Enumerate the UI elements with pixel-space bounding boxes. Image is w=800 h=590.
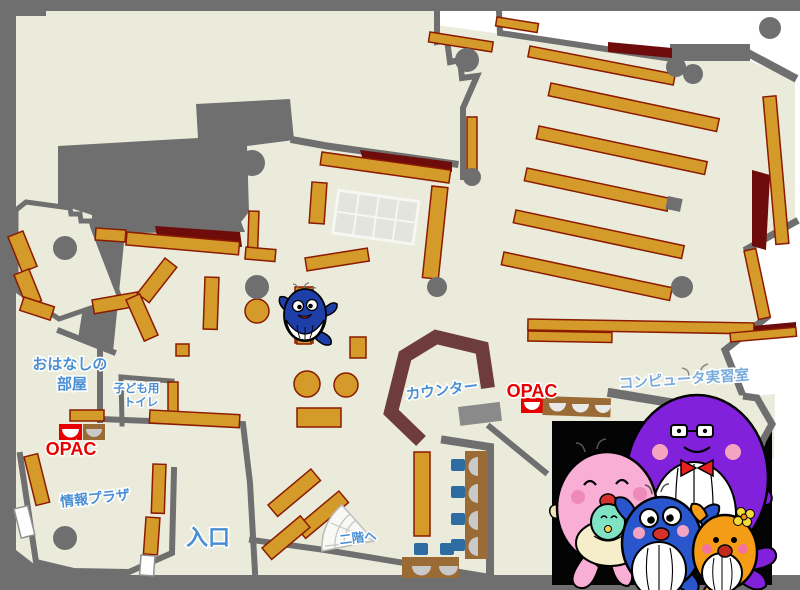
floor-map-svg: おはなしの 部屋 子ども用 トイレ OPAC 情報プラザ 入口 カウンター OP…	[0, 0, 800, 590]
label-opac-left: OPAC	[46, 439, 97, 459]
label-entrance: 入口	[186, 525, 230, 550]
opac-station-left	[59, 424, 105, 440]
wall-band-top-right	[670, 44, 750, 61]
library-floor-map: おはなしの 部屋 子ども用 トイレ OPAC 情報プラザ 入口 カウンター OP…	[0, 0, 800, 590]
flower	[734, 508, 755, 527]
label-opac-center: OPAC	[507, 381, 558, 401]
